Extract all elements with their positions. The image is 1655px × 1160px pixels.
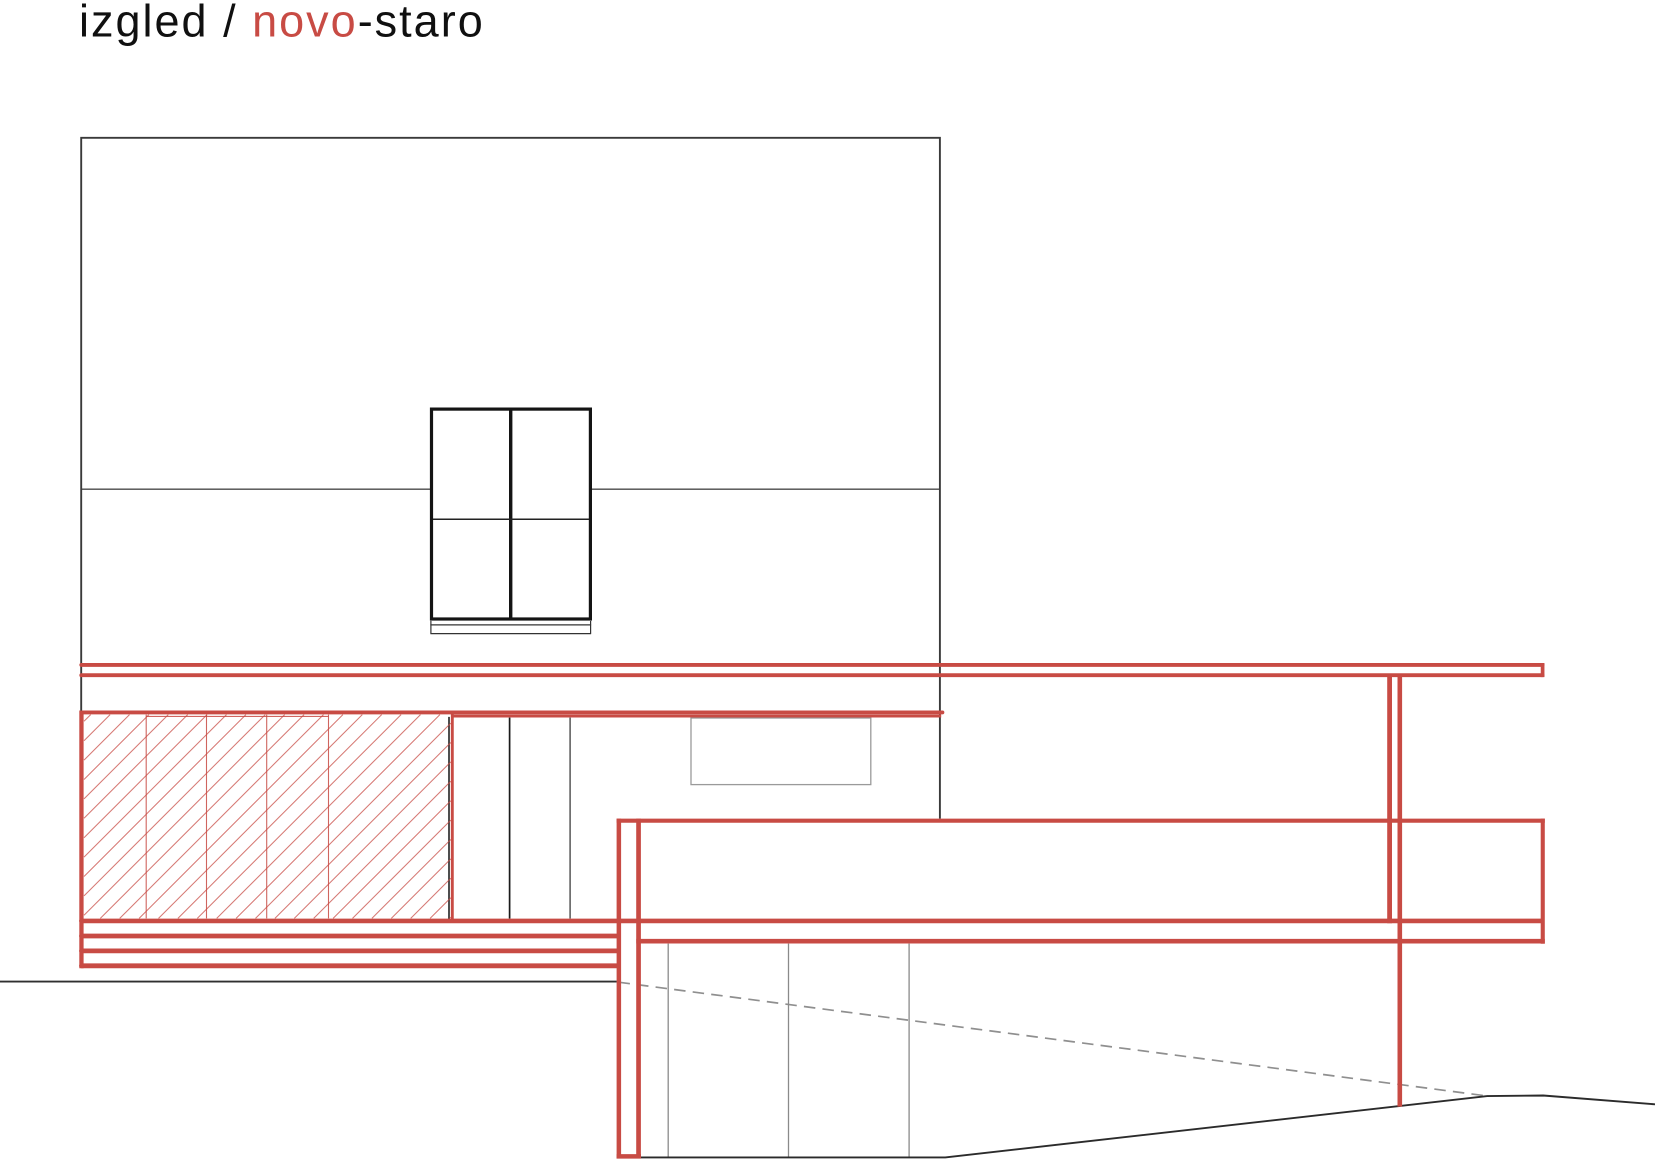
svg-text:izgled / novo-staro: izgled / novo-staro: [79, 0, 485, 47]
